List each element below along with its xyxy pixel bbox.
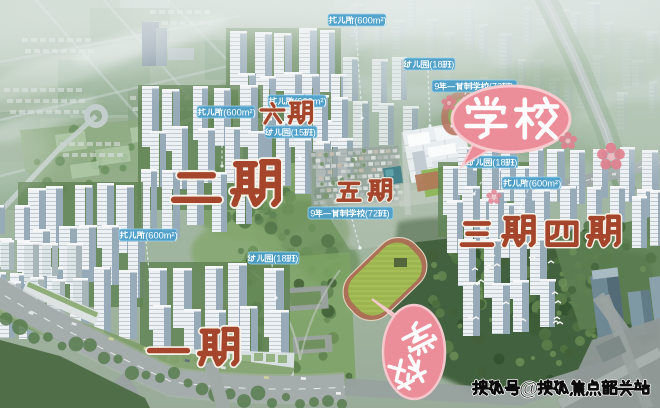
svg-text:(600m²): (600m²) <box>354 16 387 26</box>
svg-text:): ) <box>295 254 298 264</box>
svg-text:(18: (18 <box>429 60 442 70</box>
svg-text:): ) <box>313 128 316 138</box>
svg-text:(15: (15 <box>291 128 304 138</box>
svg-text:): ) <box>514 158 517 168</box>
svg-text:9: 9 <box>434 82 439 92</box>
svg-text:(72: (72 <box>365 209 378 219</box>
svg-text:): ) <box>387 209 390 219</box>
svg-text:@: @ <box>519 378 539 400</box>
svg-text:(18: (18 <box>492 158 505 168</box>
svg-text:): ) <box>451 60 454 70</box>
svg-text:(600m²): (600m²) <box>145 231 178 241</box>
svg-text:(600m²): (600m²) <box>223 108 256 118</box>
svg-text:(18: (18 <box>273 254 286 264</box>
svg-text:9: 9 <box>310 209 315 219</box>
svg-text:(600m²): (600m²) <box>529 179 562 189</box>
